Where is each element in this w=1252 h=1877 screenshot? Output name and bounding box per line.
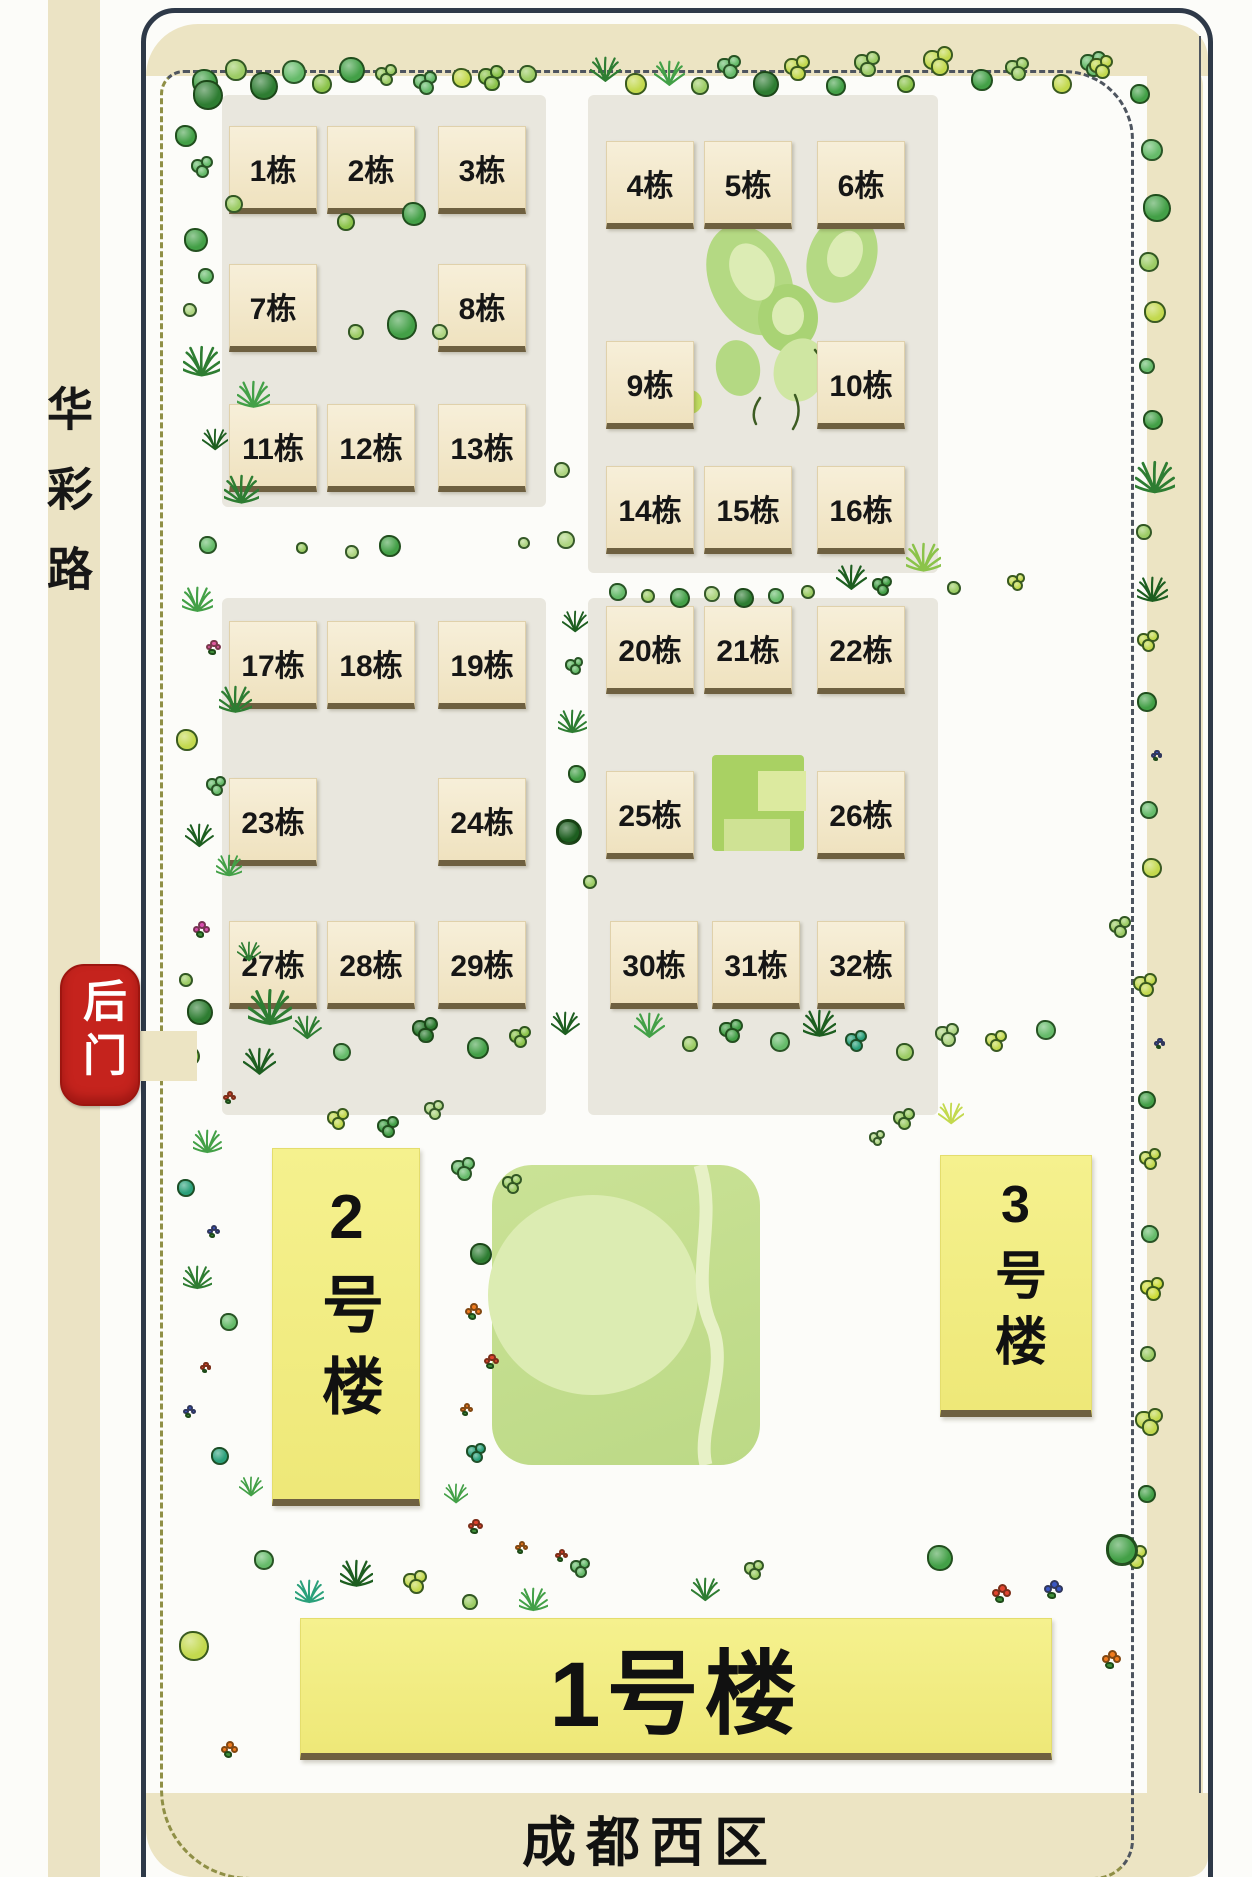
tower-2-label: 2号楼 xyxy=(301,1183,391,1436)
building-15-square: 15栋 xyxy=(704,466,792,554)
building-21-label: 21栋 xyxy=(716,626,779,670)
building-17-label: 17栋 xyxy=(241,641,304,685)
building-14-square: 14栋 xyxy=(606,466,694,554)
tower-3-label: 3号楼 xyxy=(979,1176,1054,1380)
ring-road-top xyxy=(146,24,1208,76)
building-13-square: 13栋 xyxy=(438,404,526,492)
back-gate-label: 后门 xyxy=(68,978,132,1104)
building-4-square: 4栋 xyxy=(606,141,694,229)
building-18-label: 18栋 xyxy=(339,641,402,685)
building-18-square: 18栋 xyxy=(327,621,415,709)
building-12-square: 12栋 xyxy=(327,404,415,492)
building-24-label: 24栋 xyxy=(450,798,513,842)
building-30-square: 30栋 xyxy=(610,921,698,1009)
building-22-square: 22栋 xyxy=(817,606,905,694)
building-14-label: 14栋 xyxy=(618,486,681,530)
building-20-label: 20栋 xyxy=(618,626,681,670)
square-lawn-icon xyxy=(712,755,804,851)
building-1-square: 1栋 xyxy=(229,126,317,214)
building-32-label: 32栋 xyxy=(829,941,892,985)
building-23-label: 23栋 xyxy=(241,798,304,842)
building-32-square: 32栋 xyxy=(817,921,905,1009)
west-road xyxy=(48,0,100,1877)
building-1-label: 1栋 xyxy=(250,146,297,190)
ring-road-inner-edge xyxy=(1199,36,1201,1793)
tower-3-building: 3号楼 xyxy=(940,1155,1092,1417)
building-5-label: 5栋 xyxy=(725,161,772,205)
building-2-square: 2栋 xyxy=(327,126,415,214)
building-19-label: 19栋 xyxy=(450,641,513,685)
building-15-label: 15栋 xyxy=(716,486,779,530)
tower-1-building: 1号楼 xyxy=(300,1618,1052,1760)
building-9-label: 9栋 xyxy=(627,361,674,405)
building-29-square: 29栋 xyxy=(438,921,526,1009)
building-21-square: 21栋 xyxy=(704,606,792,694)
building-13-label: 13栋 xyxy=(450,424,513,468)
building-10-square: 10栋 xyxy=(817,341,905,429)
building-7-square: 7栋 xyxy=(229,264,317,352)
building-16-square: 16栋 xyxy=(817,466,905,554)
building-10-label: 10栋 xyxy=(829,361,892,405)
building-11-square: 11栋 xyxy=(229,404,317,492)
building-4-label: 4栋 xyxy=(627,161,674,205)
building-8-square: 8栋 xyxy=(438,264,526,352)
building-6-label: 6栋 xyxy=(838,161,885,205)
building-3-square: 3栋 xyxy=(438,126,526,214)
building-7-label: 7栋 xyxy=(250,284,297,328)
building-27-square: 27栋 xyxy=(229,921,317,1009)
building-28-label: 28栋 xyxy=(339,941,402,985)
building-6-square: 6栋 xyxy=(817,141,905,229)
building-22-label: 22栋 xyxy=(829,626,892,670)
central-park xyxy=(492,1165,760,1465)
building-5-square: 5栋 xyxy=(704,141,792,229)
building-24-square: 24栋 xyxy=(438,778,526,866)
tower-1-label: 1号楼 xyxy=(301,1619,1051,1753)
building-16-label: 16栋 xyxy=(829,486,892,530)
tower-2-building: 2号楼 xyxy=(272,1148,420,1506)
ring-road-right xyxy=(1147,60,1203,1800)
building-17-square: 17栋 xyxy=(229,621,317,709)
building-29-label: 29栋 xyxy=(450,941,513,985)
region-title: 成都西区 xyxy=(200,1798,1100,1877)
building-11-label: 11栋 xyxy=(242,424,304,468)
building-12-label: 12栋 xyxy=(339,424,402,468)
building-25-label: 25栋 xyxy=(618,791,681,835)
building-19-square: 19栋 xyxy=(438,621,526,709)
stamp-icon: 后门 xyxy=(60,964,140,1106)
west-road-label: 华彩路 xyxy=(50,385,100,625)
building-25-square: 25栋 xyxy=(606,771,694,859)
building-31-square: 31栋 xyxy=(712,921,800,1009)
building-3-label: 3栋 xyxy=(459,146,506,190)
building-2-label: 2栋 xyxy=(348,146,395,190)
map-canvas: 华彩路 1栋2栋3栋4栋5栋6栋7栋8栋9栋10栋11栋12栋13栋 xyxy=(0,0,1252,1877)
building-30-label: 30栋 xyxy=(622,941,685,985)
building-8-label: 8栋 xyxy=(459,284,506,328)
building-28-square: 28栋 xyxy=(327,921,415,1009)
building-20-square: 20栋 xyxy=(606,606,694,694)
building-23-square: 23栋 xyxy=(229,778,317,866)
building-31-label: 31栋 xyxy=(724,941,787,985)
building-27-label: 27栋 xyxy=(241,941,304,985)
building-26-label: 26栋 xyxy=(829,791,892,835)
building-26-square: 26栋 xyxy=(817,771,905,859)
building-9-square: 9栋 xyxy=(606,341,694,429)
